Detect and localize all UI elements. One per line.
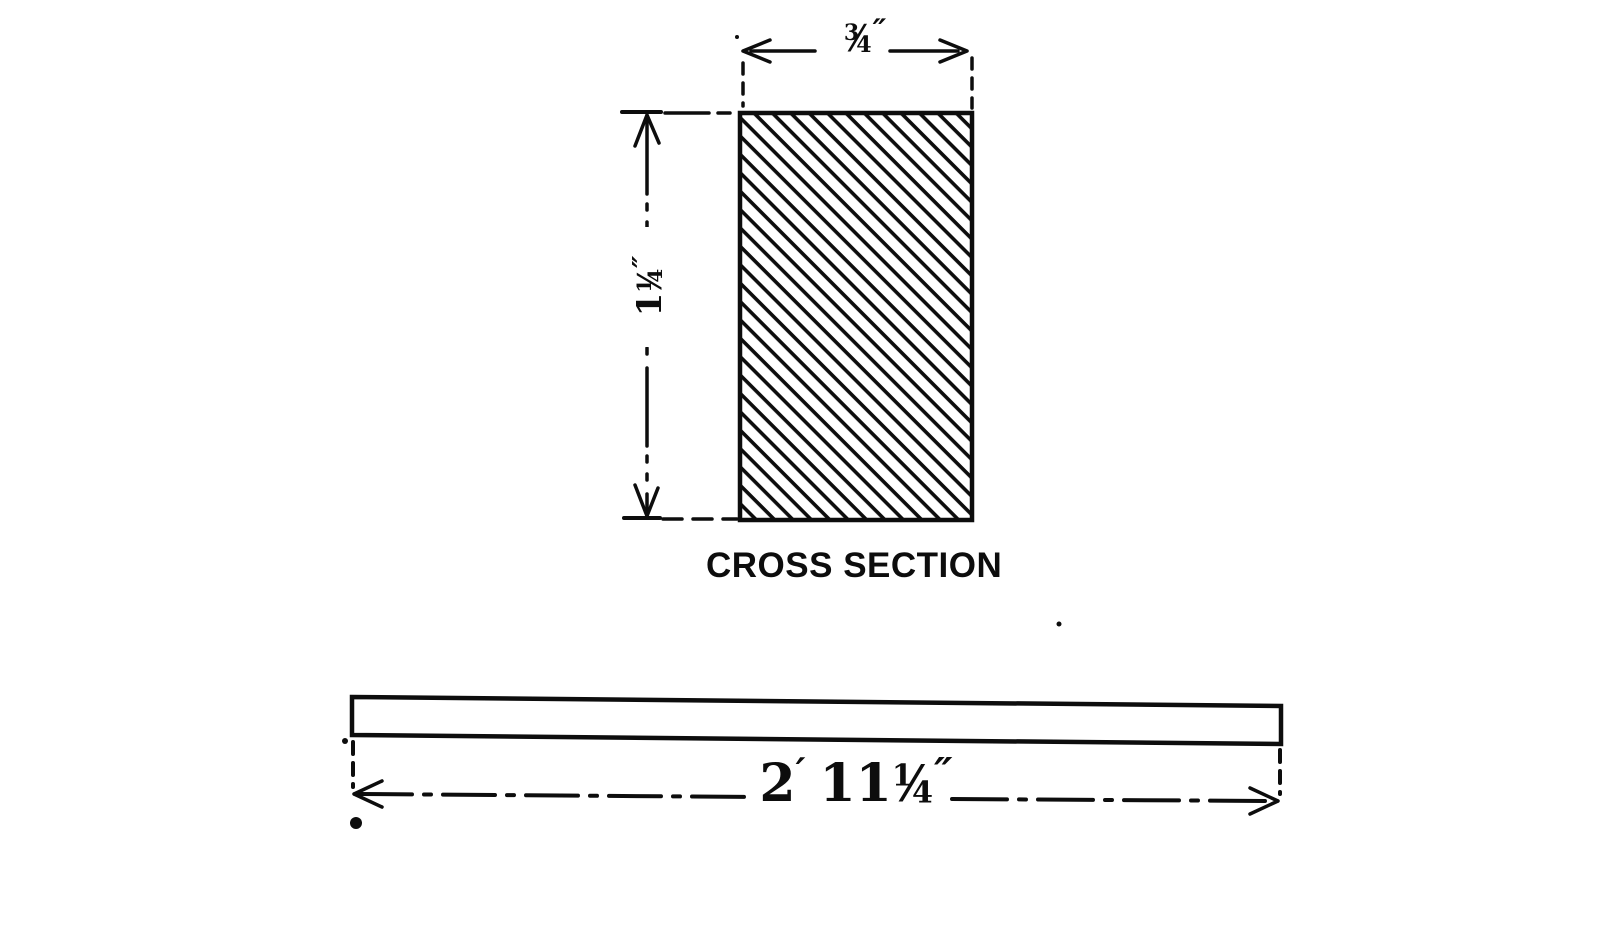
height-dimension-label: 11⁄4″ — [619, 227, 667, 347]
length-inches: 11 — [819, 753, 891, 814]
inch-mark: ″ — [934, 748, 951, 797]
length-dim-line-right — [952, 799, 1271, 801]
inch-mark: ″ — [627, 258, 659, 268]
ink-speck — [350, 817, 362, 829]
cross-section-caption: CROSS SECTION — [706, 548, 980, 583]
length-dimension-label: 2′111⁄4″ — [740, 752, 970, 810]
cross-section-rect — [740, 113, 972, 520]
height-whole-number: 1 — [630, 293, 670, 317]
foot-mark: ′ — [796, 749, 806, 793]
figure-canvas: 3⁄4″ 11⁄4″ CROSS SECTION 2′111⁄4″ — [0, 0, 1606, 935]
ink-speck — [1057, 622, 1062, 627]
width-fraction-denominator: 4 — [856, 32, 871, 58]
bar-outline — [352, 697, 1281, 744]
width-dimension-label: 3⁄4″ — [818, 16, 910, 57]
length-feet: 2 — [759, 753, 795, 814]
height-fraction-denominator: 4 — [643, 269, 667, 283]
ink-speck — [735, 35, 739, 39]
ink-speck — [342, 738, 348, 744]
length-fraction-denominator: 4 — [912, 775, 933, 810]
length-dim-line-left — [360, 794, 755, 797]
inch-mark: ″ — [873, 13, 885, 49]
